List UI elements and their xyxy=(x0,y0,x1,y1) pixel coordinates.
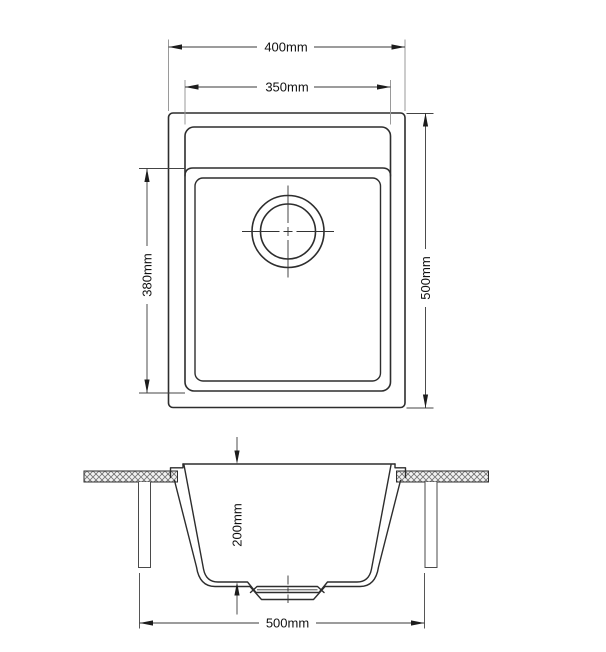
dimension-label-bowl-depth: 200mm xyxy=(230,503,245,546)
drawing-background xyxy=(0,0,606,652)
countertop-left-hatch xyxy=(84,471,178,482)
cabinet-right-panel xyxy=(425,482,437,568)
cabinet-left-panel xyxy=(139,482,151,568)
dimension-label-overall-length: 500mm xyxy=(418,256,433,299)
countertop-right-hatch xyxy=(397,471,489,482)
dimension-label-overall-width: 400mm xyxy=(264,40,307,55)
sink-technical-drawing: 400mm 350mm 380mm 500mm xyxy=(0,0,606,652)
drawing-page: 400mm 350mm 380mm 500mm xyxy=(0,0,606,652)
dimension-label-base-width: 500mm xyxy=(266,616,309,631)
dimension-label-bowl-length: 380mm xyxy=(140,253,155,296)
dimension-label-bowl-width: 350mm xyxy=(265,80,308,95)
